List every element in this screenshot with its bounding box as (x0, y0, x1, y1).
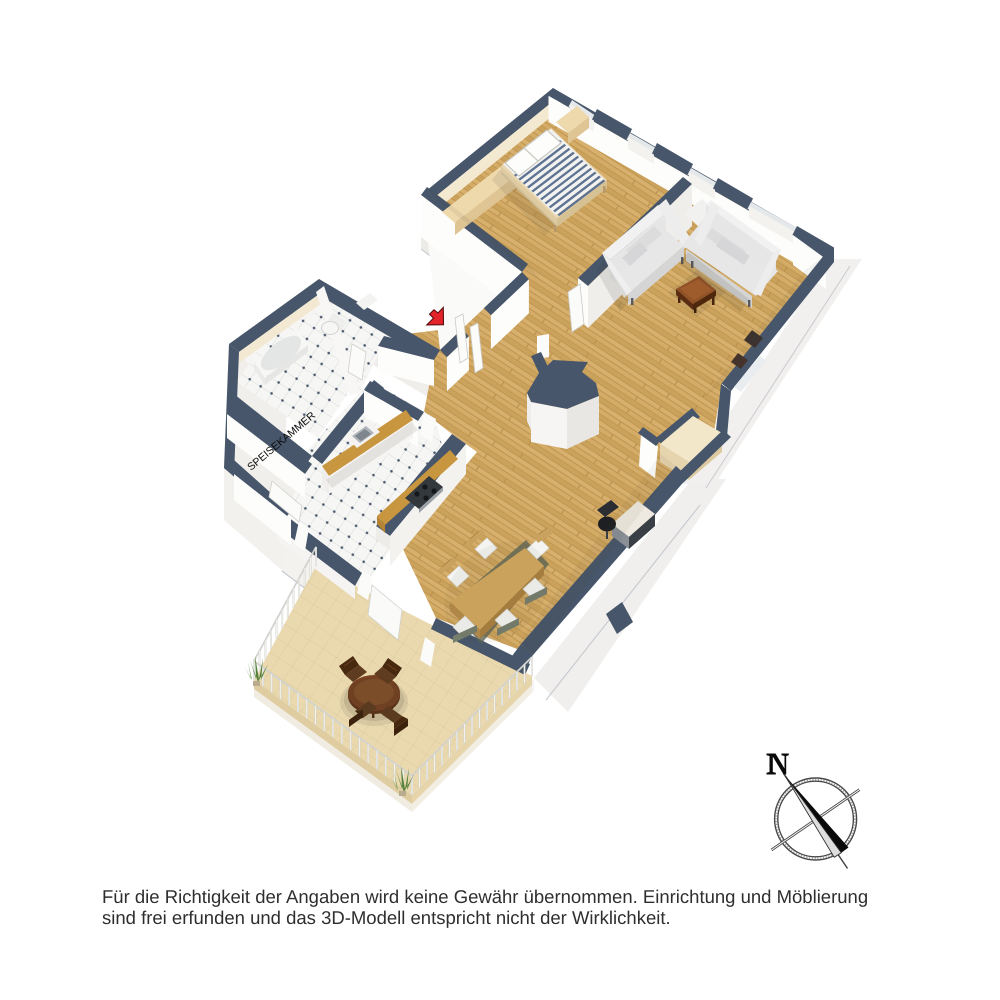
svg-text:Für die Richtigkeit der Angabe: Für die Richtigkeit der Angaben wird kei… (102, 886, 868, 907)
svg-text:sind frei erfunden und das 3D-: sind frei erfunden und das 3D-Modell ent… (102, 907, 671, 928)
